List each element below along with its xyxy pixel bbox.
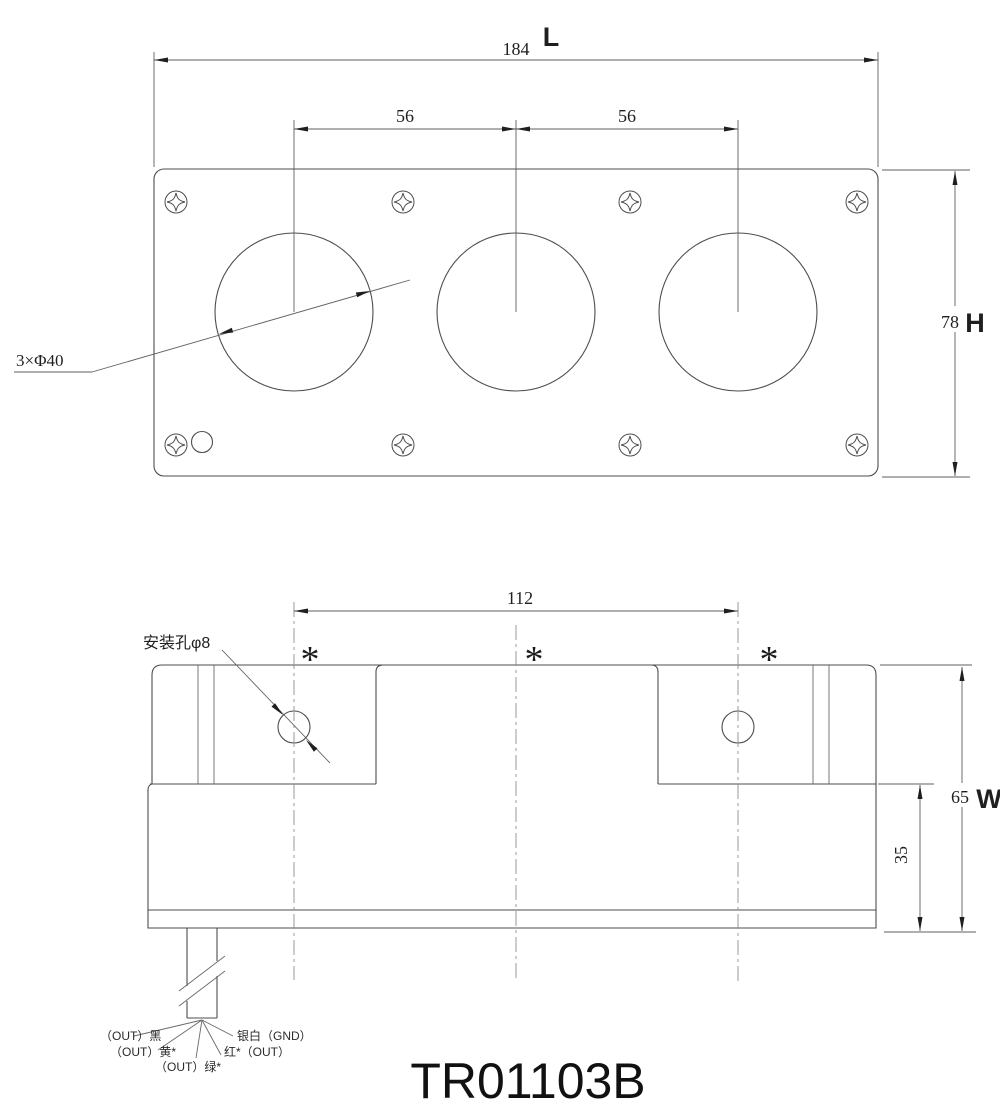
side-view-dimension-lines — [222, 611, 976, 932]
dim-width-letter: W — [976, 784, 1000, 814]
mount-hole-callout-label: 安装孔φ8 — [143, 634, 210, 652]
dim-spacing2-value: 56 — [618, 106, 636, 126]
dim-length-value: 184 — [503, 39, 530, 59]
screw-icon — [619, 434, 641, 456]
side-view: 112 安装孔φ8 65 W 35 * * * — [134, 588, 1000, 1058]
screw-icon — [846, 191, 868, 213]
center-block-edge-right — [651, 665, 658, 784]
screw-icon — [165, 191, 187, 213]
screw-icon — [165, 434, 187, 456]
wire-labels: （OUT）黑 （OUT）黄* （OUT）绿* 银白（GND） 红*（OUT） — [100, 1028, 312, 1074]
break-symbol — [179, 956, 225, 991]
center-block-edge-left — [376, 665, 383, 784]
phase-marker-2: * — [525, 639, 544, 681]
wire-label-silver: 银白（GND） — [237, 1028, 312, 1043]
dim-height-value: 78 — [941, 312, 959, 332]
dim-width-value: 65 — [951, 787, 969, 807]
phase-marker-3: * — [760, 639, 779, 681]
break-symbol — [179, 971, 225, 1006]
drawing-svg: 184 L 56 56 78 H 3×Φ40 — [0, 0, 1000, 1114]
screw-icon — [392, 191, 414, 213]
screw-icon — [392, 434, 414, 456]
output-cable — [179, 928, 225, 1018]
dim-height-letter: H — [965, 308, 985, 338]
technical-drawing-page: 184 L 56 56 78 H 3×Φ40 — [0, 0, 1000, 1114]
dim-base-height-value: 35 — [891, 846, 911, 864]
dim-spacing1-value: 56 — [396, 106, 414, 126]
top-view-dimension-arrows — [154, 58, 958, 477]
phase-marker-1: * — [301, 639, 320, 681]
body-outline — [148, 665, 876, 928]
screw-icons — [165, 191, 868, 456]
dim-mount-spacing-value: 112 — [507, 588, 533, 608]
screw-icon — [846, 434, 868, 456]
centerlines — [294, 602, 738, 982]
model-number: TR01103B — [410, 1053, 645, 1109]
screw-icon — [619, 191, 641, 213]
top-view: 184 L 56 56 78 H 3×Φ40 — [14, 22, 985, 477]
wire-label-yellow: （OUT）黄* — [110, 1045, 176, 1059]
wire-label-black: （OUT）黑 — [100, 1029, 161, 1043]
hole-callout-label: 3×Φ40 — [16, 351, 64, 370]
wire-label-green: （OUT）绿* — [155, 1059, 221, 1074]
dim-length-letter: L — [543, 22, 560, 52]
top-view-dimension-lines — [14, 52, 970, 477]
pilot-hole — [192, 432, 213, 453]
wire-label-red: 红*（OUT） — [224, 1044, 290, 1059]
